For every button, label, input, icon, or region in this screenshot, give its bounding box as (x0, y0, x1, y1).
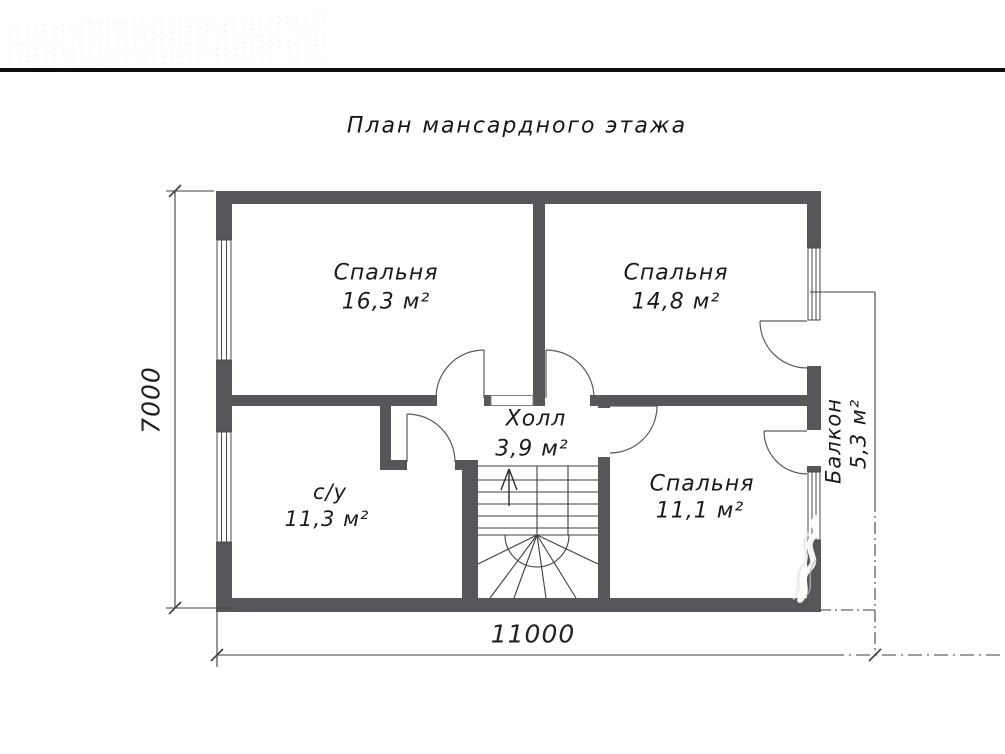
floor-plan-page: План мансардного этажа (0, 0, 1005, 754)
room-label-bathroom-area: 11,3 м² (285, 507, 370, 531)
wall-hall-band-sliver (484, 395, 491, 406)
room-label-bedroom14-name: Спальня (624, 261, 729, 286)
wall-between-bedrooms (533, 204, 545, 406)
window-bedroom16-left (217, 240, 231, 360)
wall-hall-band-left (232, 395, 437, 406)
room-label-bedroom11-name: Спальня (650, 472, 755, 497)
wall-right-seg (807, 191, 821, 248)
room-label-balcony-name: Балкон (822, 398, 846, 484)
room-label-bedroom11-area: 11,1 м² (656, 499, 744, 524)
stairs-treads (478, 466, 598, 535)
wall-left-seg (216, 191, 232, 240)
door-balcony-bedroom14 (760, 321, 807, 368)
dimension-label-bottom: 11000 (491, 620, 576, 649)
dimension-bottom-11000 (211, 612, 1003, 667)
stairs-winders (478, 535, 598, 598)
windows (217, 240, 820, 542)
wall-stairs-right (598, 457, 610, 598)
door-bedroom14 (546, 350, 594, 398)
wall-stairs-right (598, 395, 610, 408)
wall-bottom (216, 598, 821, 612)
dimension-label-left: 7000 (137, 366, 166, 434)
room-label-bedroom16-area: 16,3 м² (342, 290, 430, 315)
door-bedroom16 (436, 350, 484, 398)
wall-right-seg (807, 466, 821, 472)
window-bedroom14-right (808, 248, 820, 320)
wall-opening-outline (491, 396, 533, 406)
stairs (478, 466, 598, 598)
wall-top (216, 191, 807, 204)
wall-right-seg (807, 366, 821, 430)
door-balcony-bedroom11 (764, 431, 807, 474)
room-label-bathroom-name: с/у (313, 480, 347, 504)
wall-left-seg (216, 542, 232, 612)
wall-left-seg (216, 360, 232, 432)
stairs-direction-arrow (501, 469, 517, 506)
wall-bath-vertical (380, 398, 391, 470)
wall-bath-horizontal (388, 460, 407, 470)
room-label-bedroom14-area: 14,8 м² (632, 290, 720, 315)
dim-tick (869, 649, 881, 661)
room-label-balcony: Балкон 5,3 м² (822, 398, 871, 484)
wall-stairs-left (462, 460, 478, 598)
door-bathroom (407, 414, 455, 462)
room-label-balcony-area: 5,3 м² (847, 399, 871, 469)
door-bedroom11-hall (610, 406, 657, 453)
room-label-hall-name: Холл (506, 407, 567, 432)
room-label-hall-area: 3,9 м² (495, 437, 568, 462)
window-bathroom-left (217, 432, 231, 542)
room-label-bedroom16-name: Спальня (334, 261, 439, 286)
wall-hall-band-right (590, 395, 807, 406)
